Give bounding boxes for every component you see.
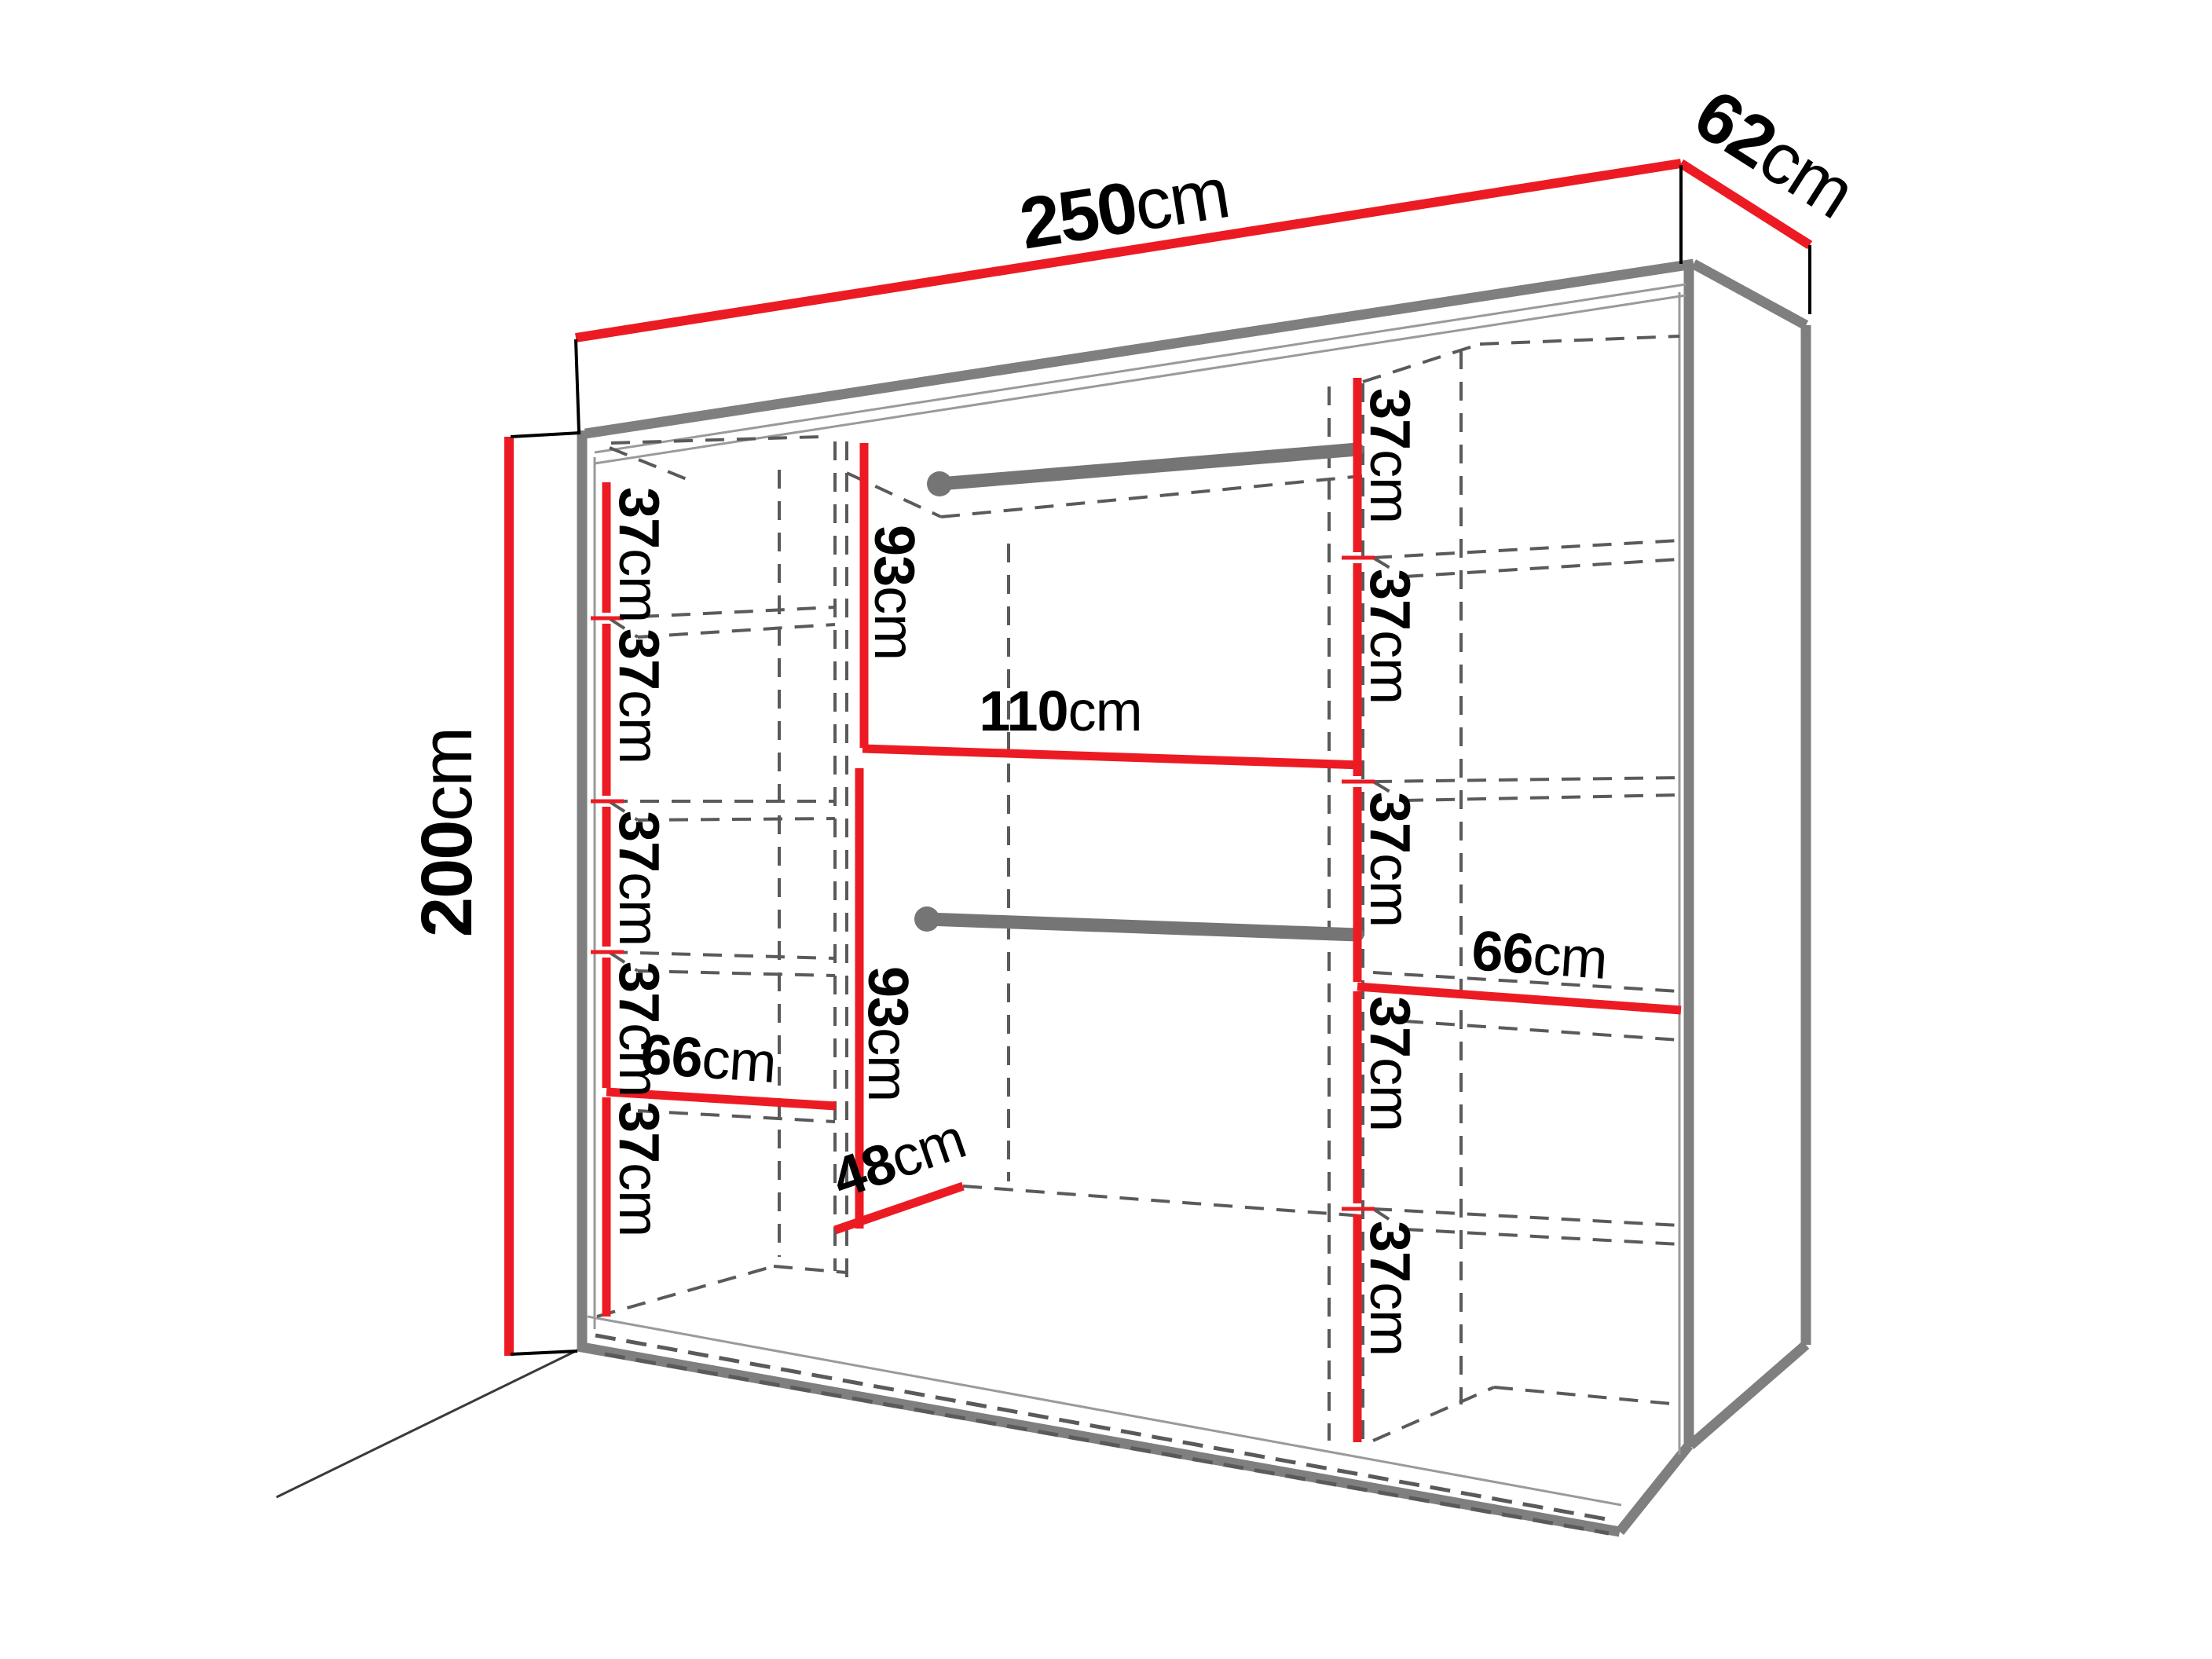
room-floor-line [276,1350,579,1497]
inner-bottom-edge [588,1317,1621,1505]
left-shelf-1-dim-label: 37cm [607,487,670,622]
hidden-shelf-edge [1404,1229,1679,1244]
front-bottom-edge [577,1346,1620,1532]
dim-extension-tick [511,433,580,437]
hidden-shelf-edge [1404,795,1679,800]
right-shelf-1-dim-label: 37cm [1358,388,1421,523]
side-bottom-edge [1690,1345,1806,1445]
hidden-shelf-edge [1404,559,1679,577]
base-corner-edge [1620,1445,1689,1532]
center-width-dim-label: 110cm [979,680,1141,743]
right-shelf-3-dim-label: 37cm [1358,792,1421,927]
rail-end-cap-icon [914,906,939,932]
dim-line-center-width [862,749,1362,765]
center-top-height-dim-label: 93cm [862,525,925,660]
side-top-edge [1694,264,1806,325]
hidden-shelf-edge [1373,778,1679,782]
wardrobe-dimension-diagram: 250cm 62cm 200cm 37cm 37cm 37cm 37cm 37c… [0,0,2212,1659]
hidden-shelf-edge [1404,1021,1679,1040]
diagram-canvas: 250cm 62cm 200cm 37cm 37cm 37cm 37cm 37c… [0,0,2212,1659]
center-bottom-height-dim-label: 93cm [856,966,919,1101]
right-shelf-4-dim-label: 37cm [1358,996,1421,1131]
rail-end-cap-icon [927,471,952,496]
hidden-floor-edge [1494,1387,1679,1404]
hanging-rail-top [939,449,1357,484]
center-depth-dim-label: 48cm [825,1107,973,1210]
height-dim-label: 200cm [407,728,487,937]
hidden-floor-edge [963,1186,1362,1216]
wardrobe-outline [577,264,1806,1532]
hidden-edge [611,437,821,443]
left-shelf-5-dim-label: 37cm [607,1101,670,1236]
hanging-rail-bottom [927,919,1357,935]
hidden-edge [1480,336,1679,344]
left-shelf-2-dim-label: 37cm [607,628,670,764]
hidden-floor-edge [1373,1387,1494,1441]
hidden-floor-edge [597,1266,774,1317]
depth-dim-label: 62cm [1681,75,1868,234]
right-shelf-2-dim-label: 37cm [1358,569,1421,704]
inner-top-edge-2 [595,295,1686,463]
hidden-shelf-edge [1373,540,1679,558]
hidden-shelf-edge [609,952,835,958]
front-top-edge [585,264,1694,434]
hidden-edge [610,448,694,482]
left-shelf-3-dim-label: 37cm [607,811,670,946]
right-shelf-5-dim-label: 37cm [1358,1221,1421,1356]
dim-extension-tick [511,1351,577,1354]
dim-extension-tick [576,339,579,432]
left-width-dim-label: 66cm [639,1023,778,1095]
right-width-dim-label: 66cm [1470,919,1609,991]
width-dim-label: 250cm [1015,152,1234,264]
